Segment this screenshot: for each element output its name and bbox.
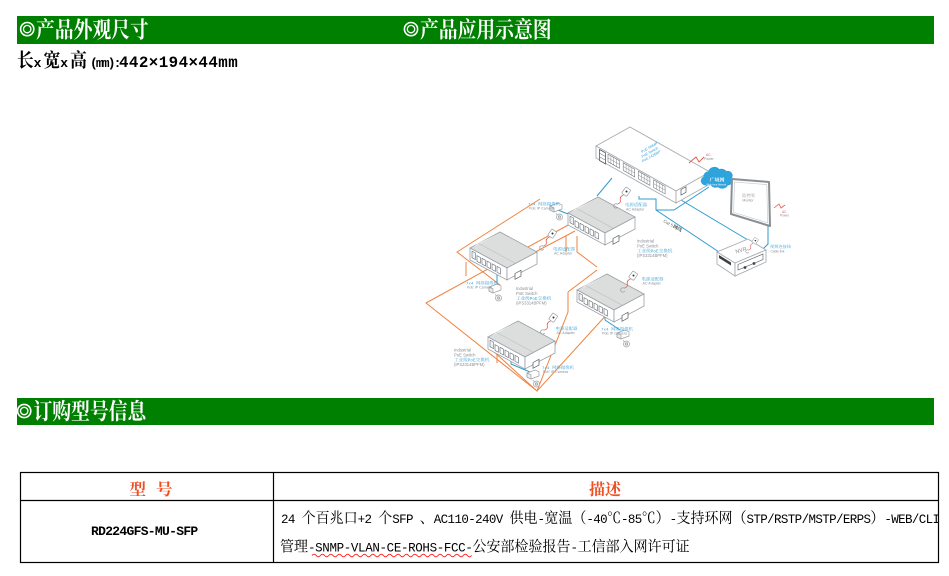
svg-text:PoE IP Camera: PoE IP Camera xyxy=(467,286,492,290)
svg-text:SFP: SFP xyxy=(392,513,413,527)
svg-text:AC110-240V: AC110-240V xyxy=(434,513,504,527)
svg-text:24: 24 xyxy=(281,513,295,527)
svg-text:-85: -85 xyxy=(621,513,642,527)
svg-text:-: - xyxy=(670,513,677,527)
svg-text:PoE Switch: PoE Switch xyxy=(637,243,659,248)
svg-text:442×194×44mm: 442×194×44mm xyxy=(119,54,238,72)
svg-text:(IPS3314BPFM): (IPS3314BPFM) xyxy=(454,362,485,367)
svg-text:Cable link: Cable link xyxy=(771,250,785,254)
svg-text:RD224GFS-MU-SFP: RD224GFS-MU-SFP xyxy=(91,524,198,539)
svg-text:PoE IP Camera: PoE IP Camera xyxy=(529,207,554,211)
svg-text:AC Adapter: AC Adapter xyxy=(643,282,662,286)
svg-text:+2: +2 xyxy=(358,513,372,527)
svg-text:PoE Switch: PoE Switch xyxy=(516,291,538,296)
svg-text:(IPS3314BPFM): (IPS3314BPFM) xyxy=(637,253,668,258)
svg-text:Wide Area Network: Wide Area Network xyxy=(707,184,728,187)
svg-text:(IPS3314BPFM): (IPS3314BPFM) xyxy=(516,301,547,306)
svg-text:x: x xyxy=(34,56,44,71)
svg-text:(mm):: (mm): xyxy=(90,56,120,71)
svg-text:-WEB/CLI: -WEB/CLI xyxy=(884,513,939,527)
svg-text:-: - xyxy=(570,542,577,556)
svg-text:Power: Power xyxy=(780,214,790,218)
svg-text:AC Adapter: AC Adapter xyxy=(557,331,576,335)
svg-text:Power: Power xyxy=(704,157,714,161)
svg-text:STP/RSTP/MSTP/ERPS: STP/RSTP/MSTP/ERPS xyxy=(747,513,871,527)
svg-text:PoE IP Camera: PoE IP Camera xyxy=(602,332,627,336)
svg-text:-40: -40 xyxy=(586,513,607,527)
svg-text:-: - xyxy=(537,513,544,527)
svg-text:PoE IP Camera: PoE IP Camera xyxy=(543,370,568,374)
svg-text:AC Adapter: AC Adapter xyxy=(554,252,573,256)
svg-text:-SNMP-VLAN-CE-ROHS-FCC-: -SNMP-VLAN-CE-ROHS-FCC- xyxy=(308,542,472,556)
svg-text:x: x xyxy=(60,56,70,71)
svg-text:AC Adapter: AC Adapter xyxy=(626,207,645,211)
svg-text:PoE Switch: PoE Switch xyxy=(454,352,476,357)
svg-text:Monitor: Monitor xyxy=(743,199,755,203)
